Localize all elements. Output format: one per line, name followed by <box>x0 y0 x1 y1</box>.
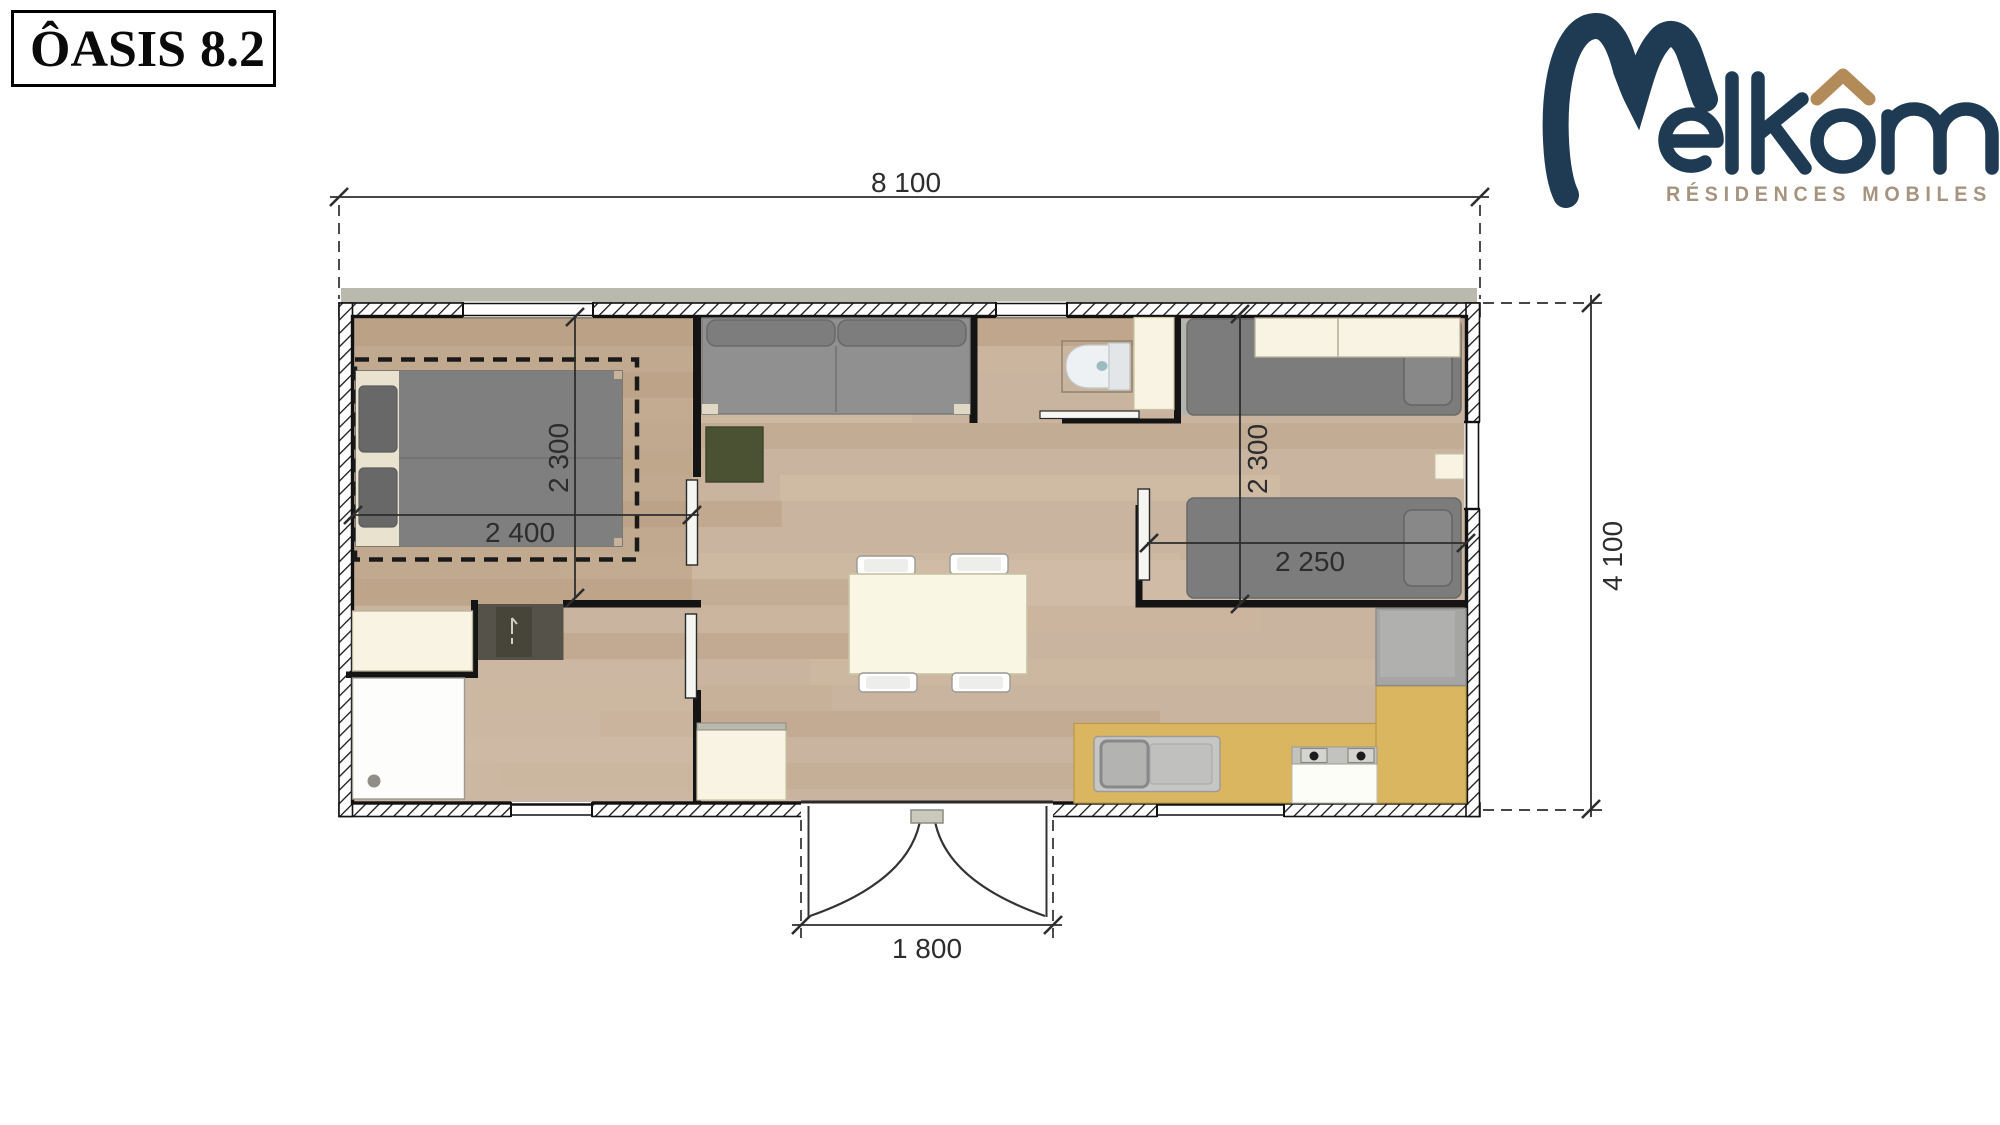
svg-text:1 800: 1 800 <box>892 933 962 964</box>
svg-text:2 400: 2 400 <box>485 517 555 548</box>
svg-text:4 100: 4 100 <box>1597 521 1628 591</box>
svg-text:ÔASIS: ÔASIS <box>30 20 186 78</box>
svg-text:2 300: 2 300 <box>1242 424 1273 494</box>
svg-text:8 100: 8 100 <box>871 167 941 198</box>
svg-text:RÉSIDENCES MOBILES: RÉSIDENCES MOBILES <box>1666 181 1992 206</box>
svg-text:2 250: 2 250 <box>1275 546 1345 577</box>
svg-text:8.2: 8.2 <box>200 21 265 78</box>
svg-text:2 300: 2 300 <box>543 423 574 493</box>
